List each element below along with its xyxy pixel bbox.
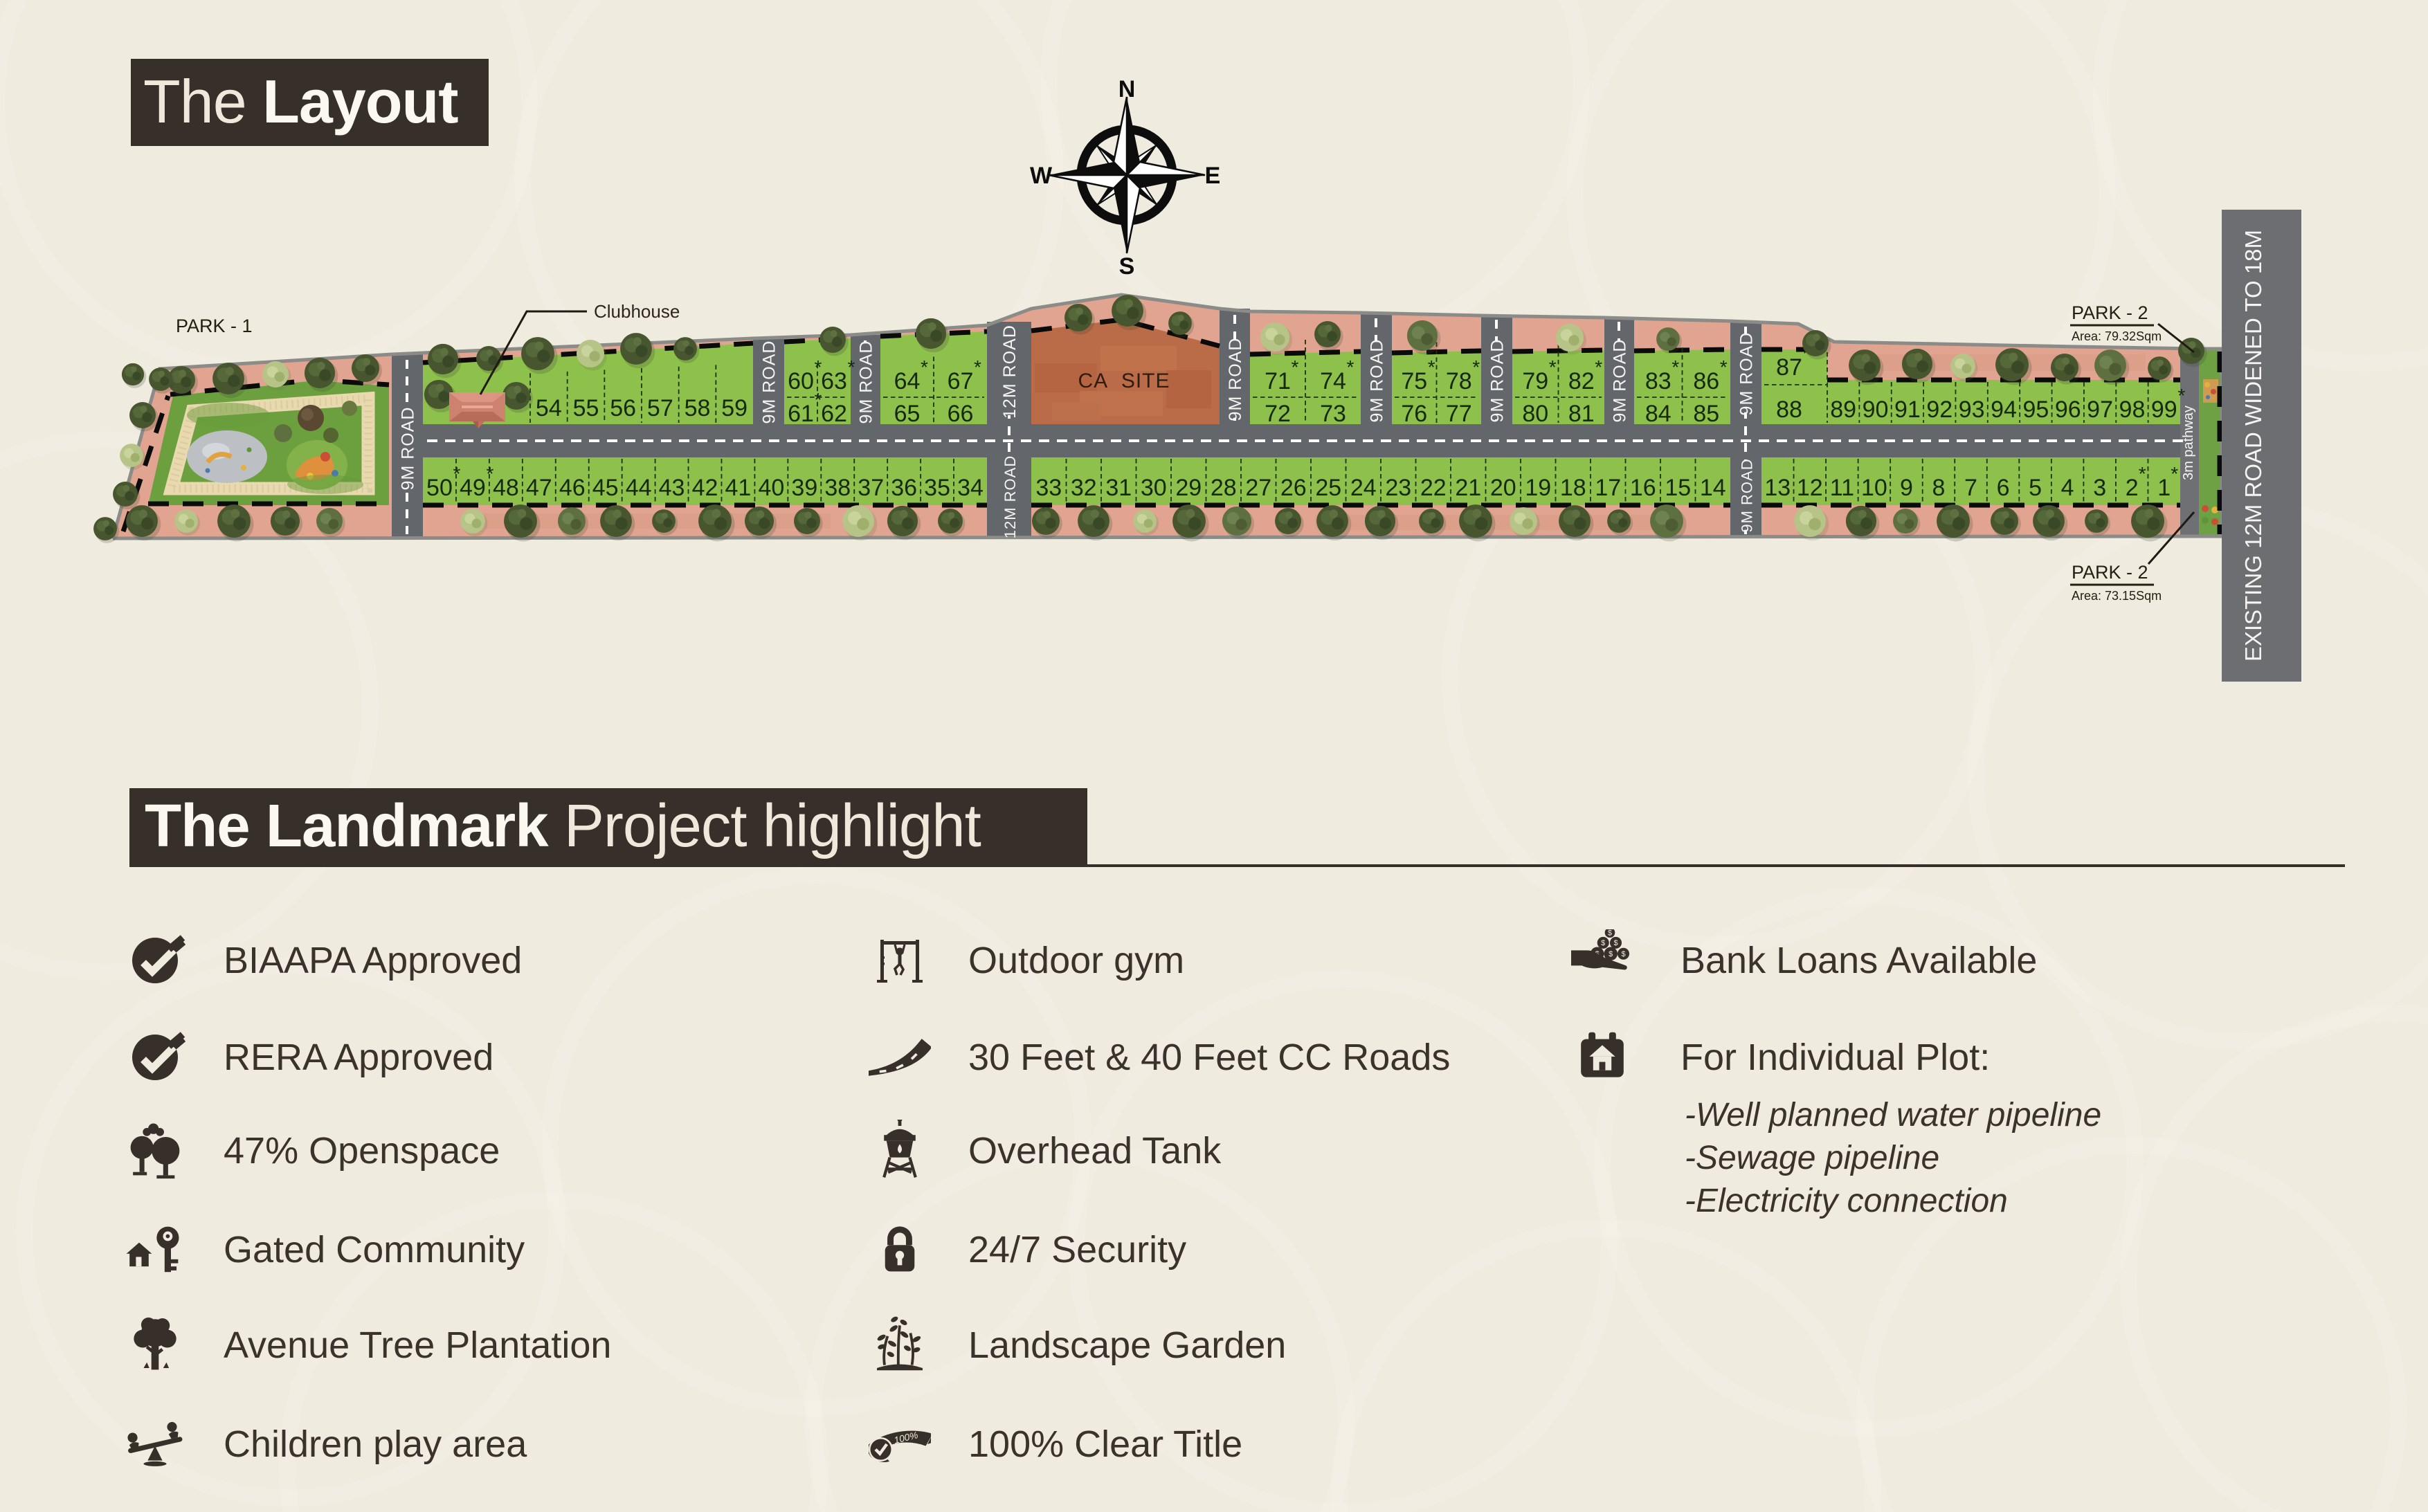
svg-text:43: 43 bbox=[659, 475, 685, 501]
svg-text:81: 81 bbox=[1568, 401, 1595, 427]
svg-text:76: 76 bbox=[1401, 401, 1427, 427]
svg-text:31: 31 bbox=[1105, 475, 1132, 501]
svg-text:78: 78 bbox=[1446, 368, 1472, 394]
svg-text:*: * bbox=[1347, 356, 1355, 378]
svg-text:95: 95 bbox=[2022, 397, 2049, 423]
svg-text:32: 32 bbox=[1071, 475, 1097, 501]
svg-text:91: 91 bbox=[1894, 397, 1921, 423]
svg-text:$: $ bbox=[1613, 939, 1618, 947]
svg-text:48: 48 bbox=[493, 475, 519, 501]
svg-text:*: * bbox=[1472, 356, 1480, 378]
svg-text:1: 1 bbox=[2157, 475, 2171, 501]
svg-text:12M ROAD: 12M ROAD bbox=[1002, 455, 1019, 538]
svg-text:*: * bbox=[1549, 356, 1557, 378]
svg-text:59: 59 bbox=[721, 395, 748, 421]
svg-text:$: $ bbox=[1601, 939, 1605, 947]
svg-text:26: 26 bbox=[1280, 475, 1307, 501]
svg-text:23: 23 bbox=[1385, 475, 1411, 501]
svg-text:30: 30 bbox=[1141, 475, 1167, 501]
svg-text:5: 5 bbox=[2029, 475, 2042, 501]
svg-text:17: 17 bbox=[1595, 475, 1621, 501]
svg-text:3m pathway: 3m pathway bbox=[2181, 406, 2196, 480]
svg-text:77: 77 bbox=[1446, 401, 1472, 427]
svg-text:84: 84 bbox=[1645, 401, 1671, 427]
svg-text:*: * bbox=[1428, 356, 1435, 378]
svg-text:CA SITE: CA SITE bbox=[1078, 370, 1170, 392]
svg-text:6: 6 bbox=[1997, 475, 2010, 501]
svg-text:9M ROAD: 9M ROAD bbox=[1739, 458, 1756, 532]
svg-text:57: 57 bbox=[647, 395, 673, 421]
svg-text:19: 19 bbox=[1525, 475, 1551, 501]
svg-text:56: 56 bbox=[610, 395, 636, 421]
svg-text:60: 60 bbox=[788, 368, 814, 394]
svg-text:87: 87 bbox=[1776, 354, 1802, 381]
svg-text:9M ROAD: 9M ROAD bbox=[1737, 332, 1757, 416]
svg-text:55: 55 bbox=[573, 395, 599, 421]
svg-text:98: 98 bbox=[2119, 397, 2146, 423]
svg-text:4: 4 bbox=[2061, 475, 2074, 501]
svg-text:*: * bbox=[2139, 463, 2146, 484]
svg-text:94: 94 bbox=[1991, 397, 2017, 423]
svg-text:9M ROAD: 9M ROAD bbox=[1488, 339, 1507, 423]
svg-text:49: 49 bbox=[460, 475, 486, 501]
svg-text:*: * bbox=[974, 356, 981, 378]
svg-text:*: * bbox=[2171, 463, 2178, 484]
svg-text:PARK - 2: PARK - 2 bbox=[2072, 562, 2148, 583]
svg-text:$: $ bbox=[1608, 929, 1612, 937]
svg-text:46: 46 bbox=[559, 475, 586, 501]
svg-text:9M ROAD: 9M ROAD bbox=[1368, 339, 1387, 423]
svg-text:7: 7 bbox=[1964, 475, 1977, 501]
svg-text:83: 83 bbox=[1645, 368, 1671, 394]
svg-text:8: 8 bbox=[1932, 475, 1946, 501]
svg-text:86: 86 bbox=[1693, 368, 1719, 394]
svg-text:PARK - 2: PARK - 2 bbox=[2072, 302, 2148, 323]
svg-text:93: 93 bbox=[1959, 397, 1985, 423]
svg-text:$: $ bbox=[1621, 950, 1625, 958]
svg-text:74: 74 bbox=[1320, 368, 1346, 394]
svg-text:66: 66 bbox=[948, 401, 974, 427]
svg-text:85: 85 bbox=[1693, 401, 1719, 427]
svg-text:$: $ bbox=[1609, 950, 1613, 958]
svg-text:47: 47 bbox=[526, 475, 552, 501]
svg-text:*: * bbox=[1292, 356, 1299, 378]
svg-text:*: * bbox=[921, 356, 928, 378]
svg-text:82: 82 bbox=[1568, 368, 1595, 394]
svg-text:9M ROAD: 9M ROAD bbox=[760, 340, 779, 424]
svg-text:18: 18 bbox=[1560, 475, 1586, 501]
svg-text:2: 2 bbox=[2126, 475, 2139, 501]
svg-text:100%: 100% bbox=[893, 1430, 919, 1446]
svg-text:Area: 73.15Sqm: Area: 73.15Sqm bbox=[2072, 589, 2162, 603]
svg-text:67: 67 bbox=[948, 368, 974, 394]
svg-text:92: 92 bbox=[1926, 397, 1953, 423]
svg-text:64: 64 bbox=[894, 368, 921, 394]
svg-text:62: 62 bbox=[821, 401, 847, 427]
svg-text:13: 13 bbox=[1764, 475, 1791, 501]
svg-text:Area: 79.32Sqm: Area: 79.32Sqm bbox=[2072, 329, 2162, 343]
svg-text:99: 99 bbox=[2151, 397, 2177, 423]
svg-text:S: S bbox=[1119, 253, 1135, 280]
svg-text:58: 58 bbox=[685, 395, 711, 421]
svg-text:PARK - 1: PARK - 1 bbox=[176, 316, 253, 336]
svg-text:80: 80 bbox=[1522, 401, 1548, 427]
svg-text:39: 39 bbox=[791, 475, 817, 501]
svg-text:9: 9 bbox=[1900, 475, 1913, 501]
svg-text:50: 50 bbox=[426, 475, 453, 501]
svg-text:96: 96 bbox=[2055, 397, 2081, 423]
svg-text:9M ROAD: 9M ROAD bbox=[1226, 338, 1245, 421]
svg-text:71: 71 bbox=[1265, 368, 1291, 394]
svg-text:11: 11 bbox=[1830, 475, 1854, 501]
svg-text:27: 27 bbox=[1245, 475, 1271, 501]
svg-text:35: 35 bbox=[924, 475, 950, 501]
svg-text:E: E bbox=[1205, 163, 1221, 189]
svg-text:90: 90 bbox=[1863, 397, 1889, 423]
svg-text:20: 20 bbox=[1490, 475, 1516, 501]
svg-text:*: * bbox=[848, 356, 855, 378]
svg-text:3: 3 bbox=[2093, 475, 2106, 501]
svg-text:25: 25 bbox=[1315, 475, 1341, 501]
svg-text:97: 97 bbox=[2087, 397, 2113, 423]
svg-text:37: 37 bbox=[858, 475, 884, 501]
svg-text:*: * bbox=[2177, 385, 2185, 406]
svg-text:12M ROAD: 12M ROAD bbox=[1000, 325, 1020, 419]
svg-text:79: 79 bbox=[1522, 368, 1548, 394]
svg-text:Clubhouse: Clubhouse bbox=[594, 301, 680, 322]
svg-text:88: 88 bbox=[1776, 397, 1802, 423]
svg-text:73: 73 bbox=[1320, 401, 1346, 427]
svg-text:9M ROAD: 9M ROAD bbox=[1611, 339, 1630, 423]
svg-text:63: 63 bbox=[821, 368, 847, 394]
svg-text:38: 38 bbox=[824, 475, 851, 501]
svg-text:12: 12 bbox=[1797, 475, 1823, 501]
svg-text:54: 54 bbox=[536, 395, 562, 421]
svg-text:61: 61 bbox=[788, 401, 814, 427]
svg-text:21: 21 bbox=[1455, 475, 1481, 501]
svg-text:10: 10 bbox=[1861, 475, 1887, 501]
svg-text:24: 24 bbox=[1350, 475, 1377, 501]
svg-text:15: 15 bbox=[1665, 475, 1691, 501]
svg-text:40: 40 bbox=[758, 475, 784, 501]
svg-text:EXISTING 12M ROAD WIDENED TO 1: EXISTING 12M ROAD WIDENED TO 18M bbox=[2240, 230, 2266, 662]
svg-text:9M ROAD: 9M ROAD bbox=[857, 340, 876, 424]
svg-text:16: 16 bbox=[1630, 475, 1656, 501]
svg-text:42: 42 bbox=[692, 475, 718, 501]
svg-text:34: 34 bbox=[957, 475, 984, 501]
svg-text:9M ROAD: 9M ROAD bbox=[399, 407, 418, 491]
svg-text:75: 75 bbox=[1401, 368, 1427, 394]
svg-text:33: 33 bbox=[1035, 475, 1062, 501]
svg-text:89: 89 bbox=[1830, 397, 1856, 423]
svg-text:*: * bbox=[1671, 356, 1679, 378]
svg-text:45: 45 bbox=[592, 475, 619, 501]
svg-text:65: 65 bbox=[894, 401, 921, 427]
svg-text:W: W bbox=[1030, 163, 1053, 189]
svg-text:22: 22 bbox=[1420, 475, 1447, 501]
svg-text:36: 36 bbox=[891, 475, 917, 501]
svg-text:*: * bbox=[1720, 356, 1728, 378]
svg-text:29: 29 bbox=[1175, 475, 1202, 501]
svg-text:*: * bbox=[1595, 356, 1602, 378]
svg-text:14: 14 bbox=[1700, 475, 1726, 501]
svg-text:72: 72 bbox=[1265, 401, 1291, 427]
svg-text:28: 28 bbox=[1211, 475, 1237, 501]
svg-text:44: 44 bbox=[626, 475, 652, 501]
svg-text:41: 41 bbox=[725, 475, 752, 501]
svg-text:N: N bbox=[1118, 76, 1136, 102]
